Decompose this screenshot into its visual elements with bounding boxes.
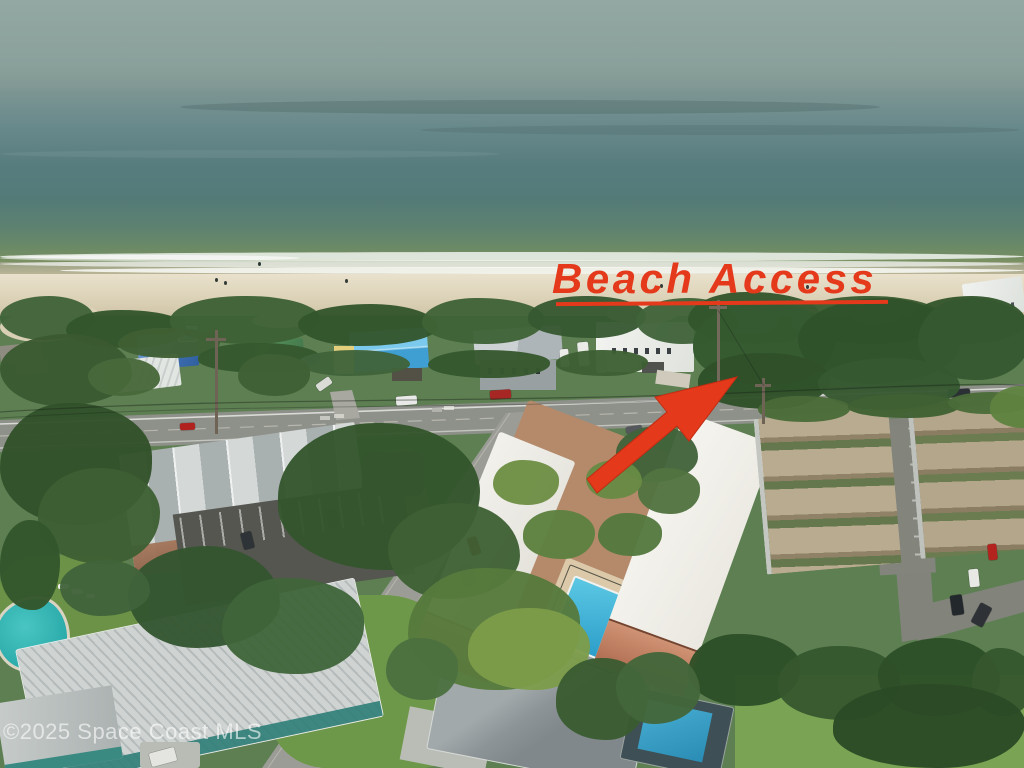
tree-canopy (238, 354, 310, 396)
beach-person (345, 279, 348, 283)
tree-canopy (428, 350, 550, 378)
beach-person (215, 278, 218, 282)
driveway (655, 370, 691, 389)
tree-canopy (616, 652, 700, 724)
tree-canopy (386, 638, 458, 700)
tree-canopy (60, 560, 150, 616)
tan-roof-condos-west (753, 407, 901, 574)
beach-person (258, 262, 261, 266)
pole-crossarm (206, 338, 226, 341)
pole-crossarm (755, 384, 771, 387)
utility-pole (717, 300, 720, 388)
tree-canopy (598, 513, 662, 556)
tree-canopy (422, 298, 544, 344)
beach-person (224, 281, 227, 285)
tree-canopy (222, 578, 364, 674)
tree-canopy (833, 684, 1024, 768)
vehicle (180, 423, 195, 431)
pole-crossarm (709, 306, 727, 309)
tree-canopy (586, 460, 642, 499)
utility-pole (215, 330, 218, 434)
tree-canopy (0, 520, 60, 610)
vehicle (987, 544, 998, 561)
aerial-photo: Beach Access ©2025 Space Coast MLS (0, 0, 1024, 768)
tree-canopy (88, 358, 160, 396)
beach-access-label: Beach Access (552, 258, 877, 300)
tree-canopy (298, 304, 438, 346)
vehicle (950, 594, 965, 615)
tree-canopy (556, 350, 648, 376)
tree-canopy (848, 394, 960, 418)
tree-canopy (758, 396, 850, 422)
tree-canopy (638, 468, 700, 514)
vehicle (968, 569, 980, 588)
tree-canopy (493, 460, 559, 505)
vehicle (396, 395, 418, 405)
tree-canopy (298, 350, 410, 376)
watermark: ©2025 Space Coast MLS (3, 719, 262, 745)
tree-canopy (523, 510, 595, 559)
vehicle (664, 401, 682, 410)
vehicle (490, 389, 512, 399)
